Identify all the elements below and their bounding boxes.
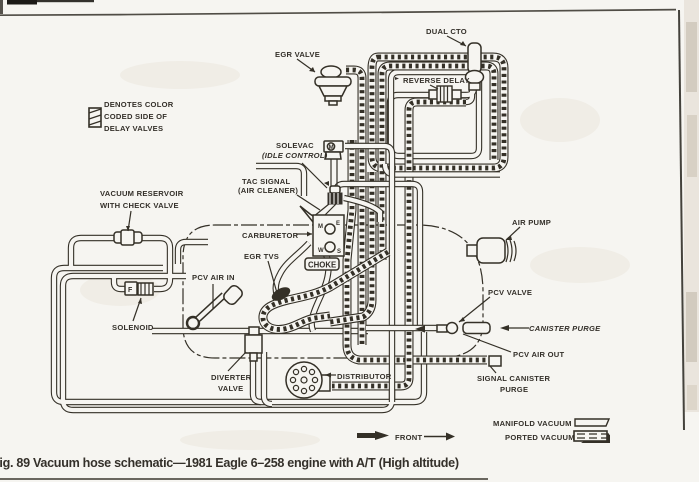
svg-text:DIVERTER: DIVERTER: [211, 373, 252, 382]
svg-text:(IDLE CONTROL): (IDLE CONTROL): [262, 151, 328, 160]
svg-text:VACUUM RESERVOIR: VACUUM RESERVOIR: [100, 189, 184, 198]
svg-text:PCV AIR IN: PCV AIR IN: [192, 273, 235, 282]
svg-text:M: M: [329, 145, 334, 151]
svg-text:FRONT: FRONT: [395, 433, 423, 442]
svg-text:S: S: [337, 249, 341, 255]
svg-text:MANIFOLD VACUUM: MANIFOLD VACUUM: [493, 419, 572, 428]
svg-text:EGR VALVE: EGR VALVE: [275, 50, 320, 59]
svg-text:EGR TVS: EGR TVS: [244, 252, 279, 261]
svg-text:PCV AIR OUT: PCV AIR OUT: [513, 350, 565, 359]
svg-text:PORTED VACUUM: PORTED VACUUM: [505, 433, 575, 442]
svg-text:E: E: [336, 221, 340, 227]
svg-text:DENOTES COLOR: DENOTES COLOR: [104, 100, 174, 109]
svg-text:AIR PUMP: AIR PUMP: [512, 218, 551, 227]
svg-text:(AIR CLEANER): (AIR CLEANER): [238, 186, 298, 195]
svg-text:PCV VALVE: PCV VALVE: [488, 288, 532, 297]
svg-text:CANISTER PURGE: CANISTER PURGE: [529, 324, 601, 333]
svg-text:PURGE: PURGE: [500, 385, 528, 394]
svg-text:Fig. 89 Vacuum hose schematic: Fig. 89 Vacuum hose schematic—1981 Eagle…: [0, 456, 459, 470]
svg-text:CODED SIDE OF: CODED SIDE OF: [104, 112, 167, 121]
svg-text:M: M: [318, 224, 323, 230]
svg-text:SOLENOID: SOLENOID: [112, 323, 154, 332]
svg-text:F: F: [128, 287, 133, 294]
svg-text:W: W: [318, 248, 324, 254]
svg-text:SIGNAL CANISTER: SIGNAL CANISTER: [477, 374, 550, 383]
svg-text:REVERSE DELAY: REVERSE DELAY: [403, 76, 470, 85]
svg-text:WITH CHECK VALVE: WITH CHECK VALVE: [100, 201, 179, 210]
svg-text:DELAY VALVES: DELAY VALVES: [104, 124, 163, 133]
svg-text:DUAL CTO: DUAL CTO: [426, 27, 467, 36]
svg-text:CHOKE: CHOKE: [308, 261, 336, 270]
svg-text:VALVE: VALVE: [218, 384, 243, 393]
svg-text:TAC SIGNAL: TAC SIGNAL: [242, 177, 290, 186]
svg-text:CARBURETOR: CARBURETOR: [242, 231, 299, 240]
svg-text:SOLEVAC: SOLEVAC: [276, 141, 314, 150]
svg-text:DISTRIBUTOR: DISTRIBUTOR: [337, 372, 392, 381]
